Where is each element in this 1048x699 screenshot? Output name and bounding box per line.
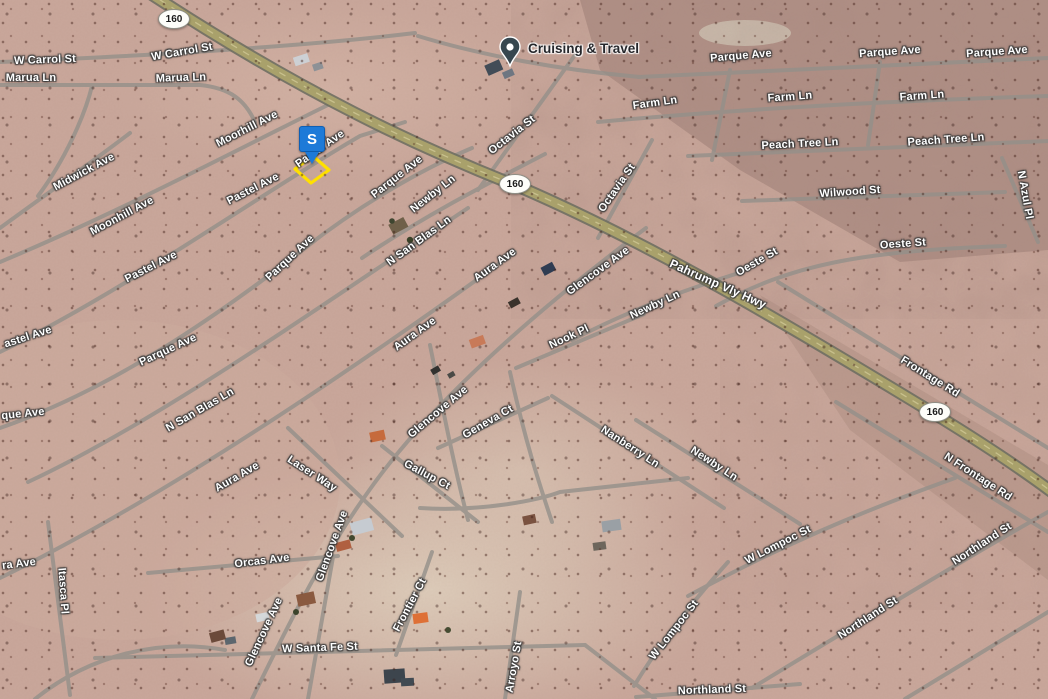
poi-label[interactable]: Cruising & Travel bbox=[528, 41, 639, 56]
route-shield-160: 160 bbox=[499, 174, 531, 194]
poi-cruising-and-travel[interactable]: Cruising & Travel bbox=[498, 36, 639, 68]
terrain-and-roads-layer bbox=[0, 0, 1048, 699]
route-shield-160: 160 bbox=[919, 402, 951, 422]
route-shield-160: 160 bbox=[158, 9, 190, 29]
selection-marker-tail bbox=[305, 152, 319, 164]
selection-marker-letter[interactable]: S bbox=[299, 126, 325, 152]
poi-pin-icon[interactable] bbox=[498, 36, 522, 68]
selection-marker-s[interactable]: S bbox=[299, 126, 325, 166]
satellite-map-canvas[interactable]: W Carrol StW Carrol StMarua LnMarua LnMo… bbox=[0, 0, 1048, 699]
